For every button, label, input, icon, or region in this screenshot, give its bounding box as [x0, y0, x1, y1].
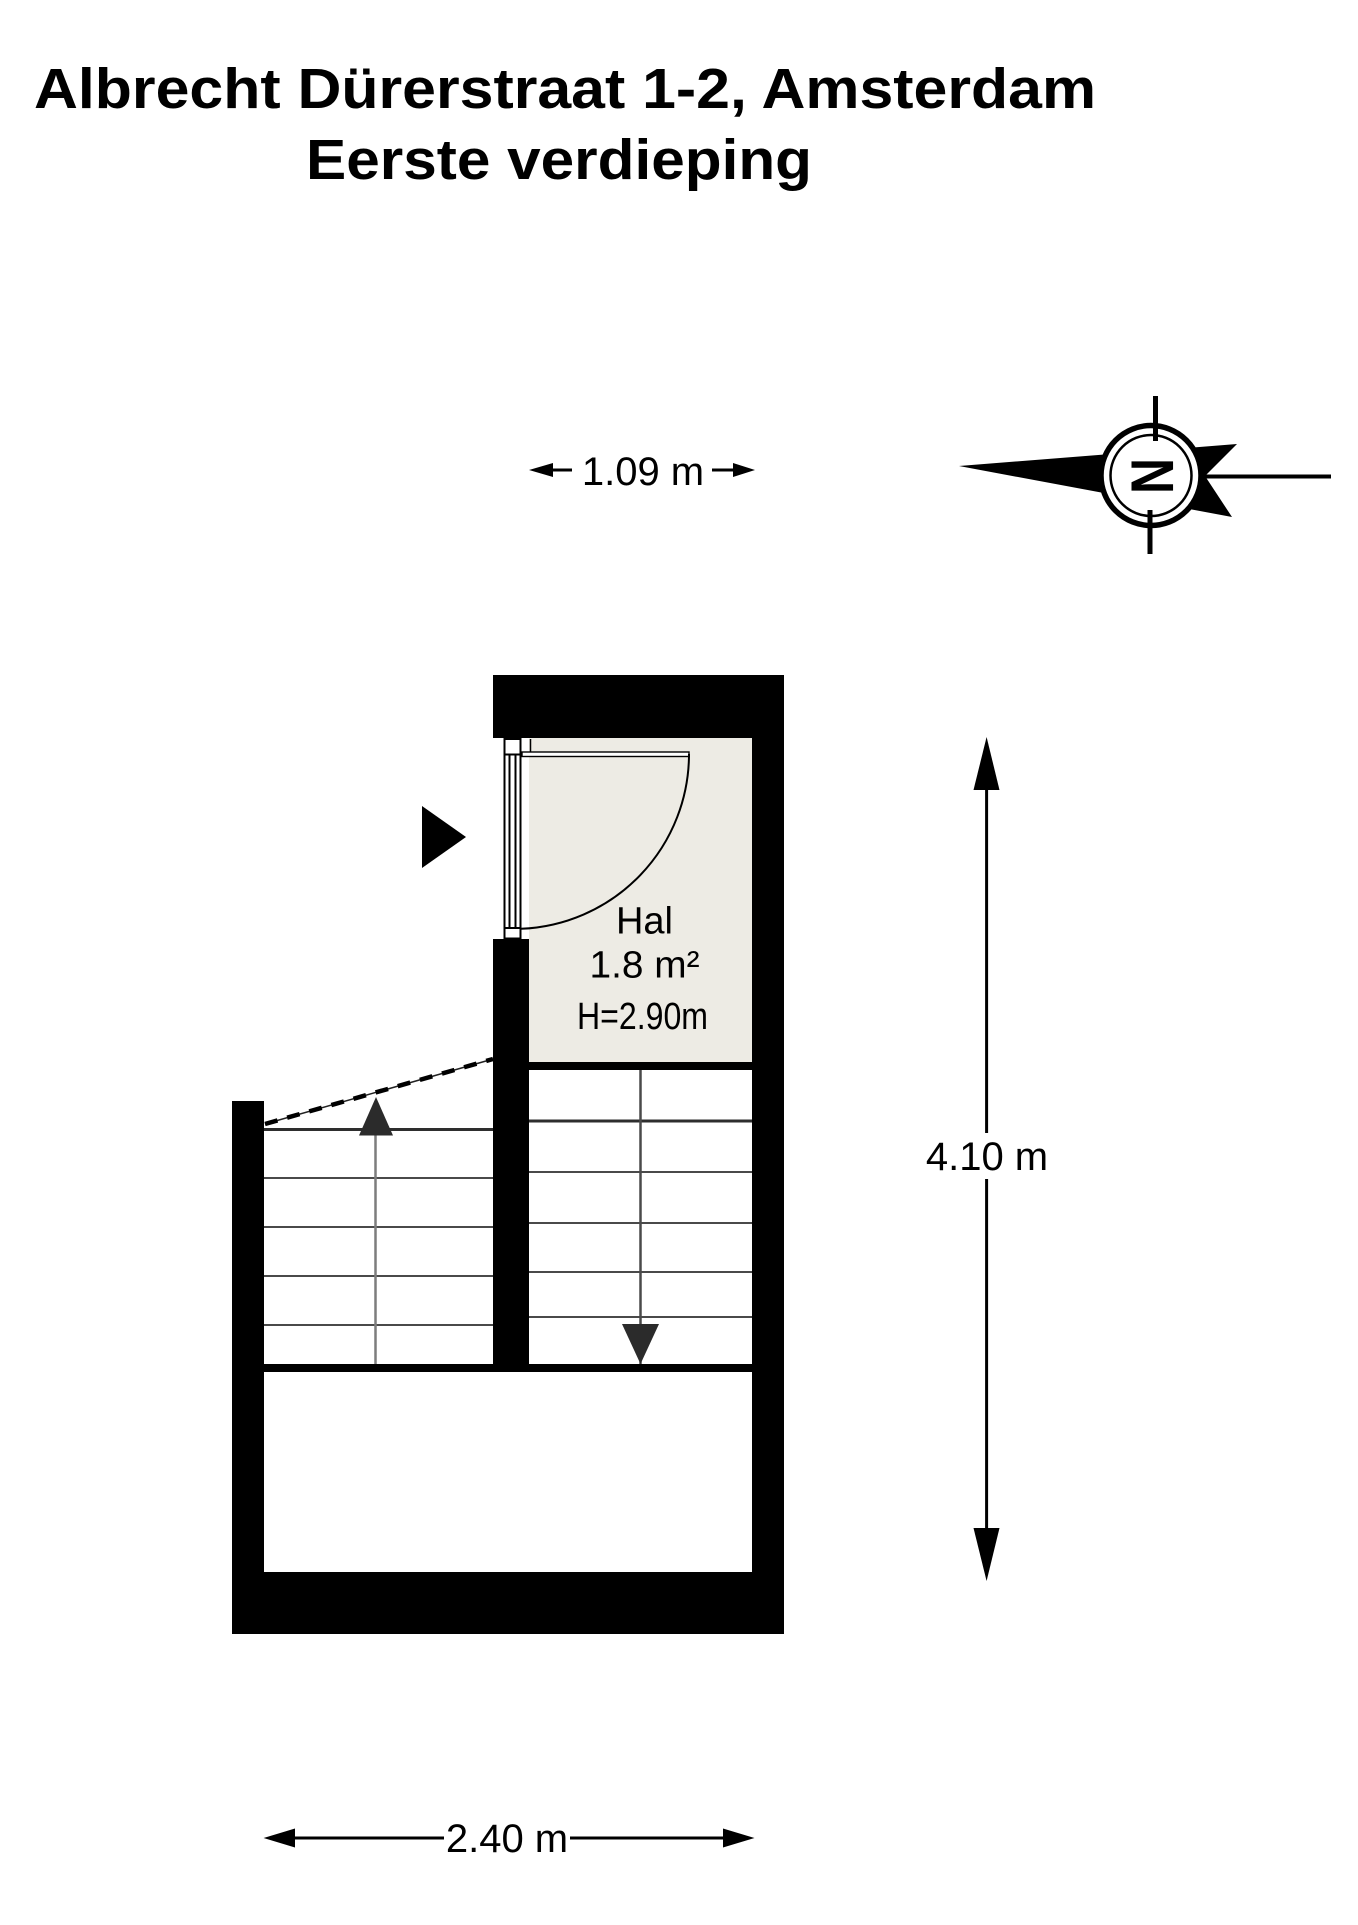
svg-text:Albrecht Dürerstraat 1-2, Amst: Albrecht Dürerstraat 1-2, Amsterdam: [34, 57, 1096, 121]
svg-text:N: N: [1118, 458, 1185, 494]
svg-text:1.09 m: 1.09 m: [582, 450, 704, 494]
svg-text:2.40 m: 2.40 m: [446, 1817, 568, 1861]
svg-text:H=2.90m: H=2.90m: [577, 996, 708, 1038]
svg-text:Eerste verdieping: Eerste verdieping: [306, 128, 812, 192]
svg-text:4.10 m: 4.10 m: [926, 1135, 1048, 1179]
svg-text:Hal: Hal: [616, 901, 673, 943]
svg-text:1.8 m²: 1.8 m²: [590, 945, 700, 987]
